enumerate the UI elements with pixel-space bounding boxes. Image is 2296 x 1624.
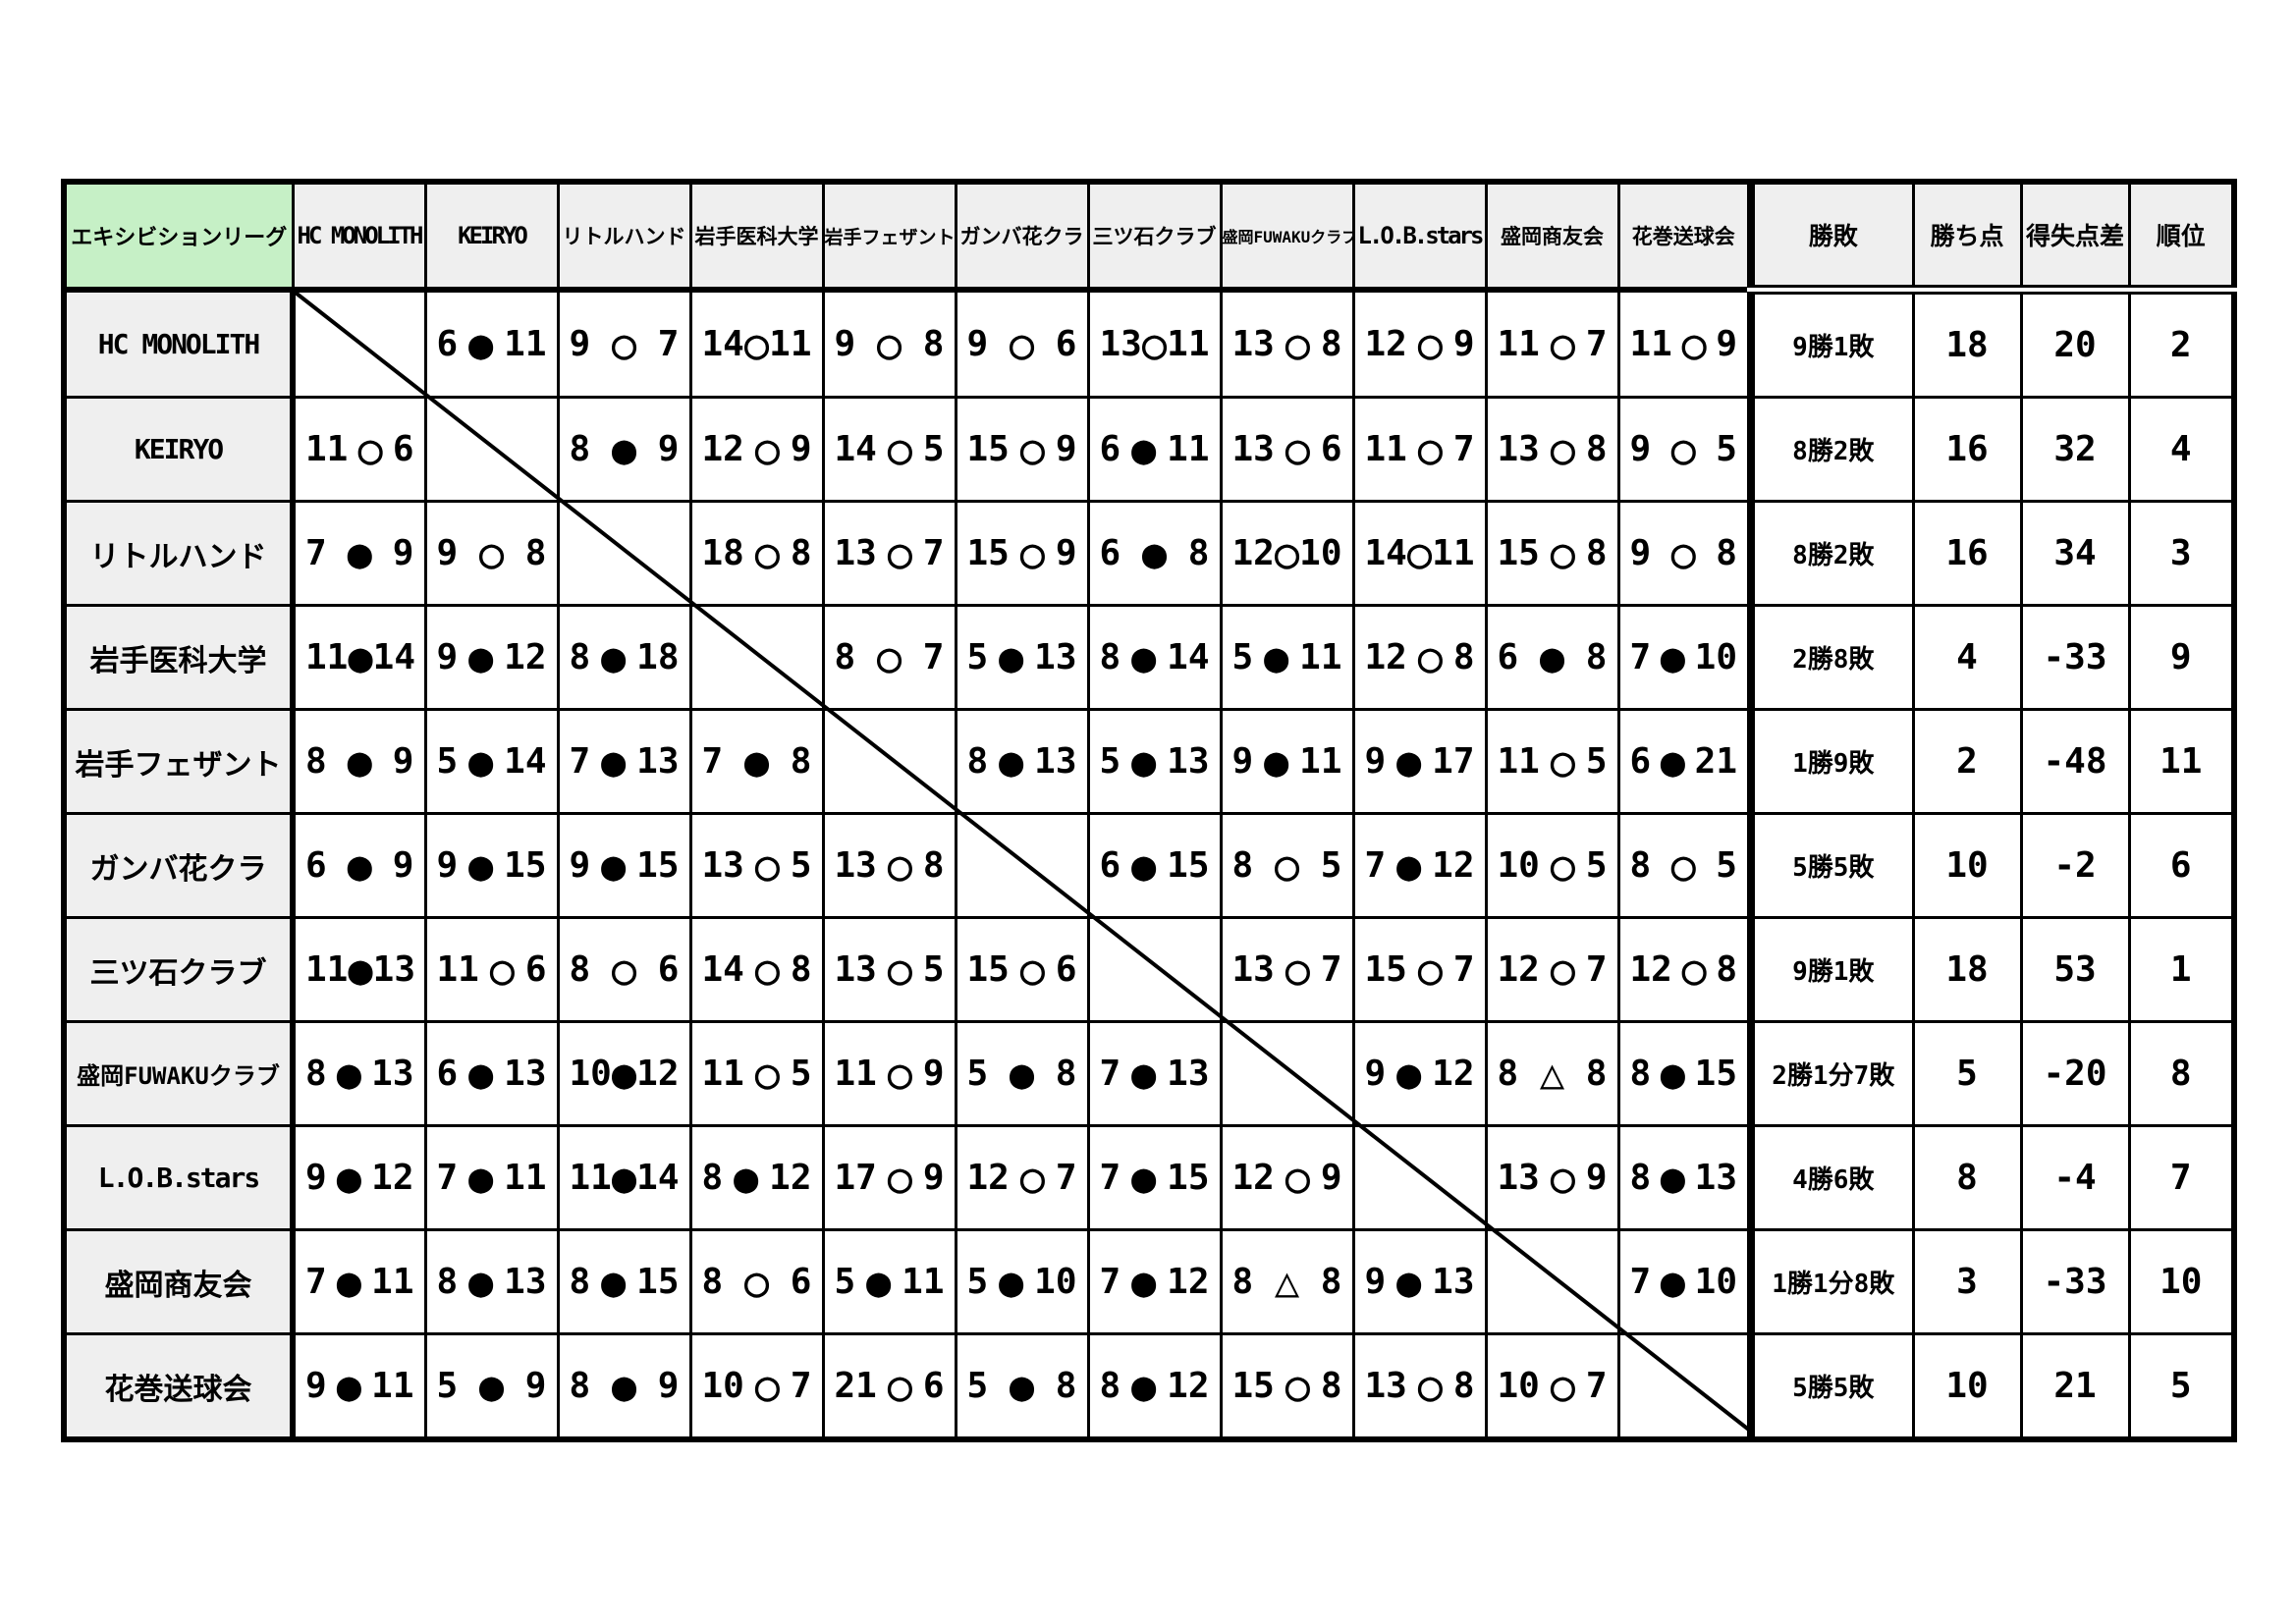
- score-left: 13: [835, 952, 877, 988]
- score-right: 7: [1453, 952, 1475, 988]
- diff-cell: 32: [2021, 398, 2129, 502]
- result-mark-icon: ●: [1010, 1054, 1034, 1095]
- match-result: 8○5: [1620, 815, 1748, 916]
- score-left: 6: [305, 848, 327, 884]
- result-mark-icon: ●: [348, 845, 372, 887]
- result-mark-icon: ●: [1264, 741, 1288, 783]
- score-right: 14: [373, 640, 415, 676]
- diff-cell: 53: [2021, 918, 2129, 1022]
- score-left: 9: [1232, 744, 1254, 780]
- score-right: 15: [1695, 1056, 1737, 1092]
- record-cell: 1勝9敗: [1751, 710, 1913, 814]
- match-cell: 7●9: [293, 502, 425, 606]
- score-left: 13: [1100, 327, 1142, 362]
- points-cell: 4: [1913, 606, 2021, 710]
- result-mark-icon: ●: [337, 1158, 361, 1199]
- match-result: 15○6: [957, 919, 1087, 1020]
- score-left: 5: [437, 1369, 459, 1404]
- score-right: 8: [1586, 1056, 1608, 1092]
- score-left: 6: [437, 1056, 459, 1092]
- match-result: 5●11: [1223, 607, 1352, 708]
- match-cell: 8●9: [558, 1334, 690, 1440]
- score-left: 10: [570, 1056, 612, 1092]
- match-result: 10○7: [692, 1335, 822, 1436]
- score-right: 14: [504, 744, 546, 780]
- score-left: 10: [1498, 848, 1540, 884]
- result-mark-icon: ●: [999, 637, 1023, 678]
- table-row: 盛岡FUWAKUクラブ8●136●1310●1211○511○95●87●139…: [64, 1022, 2234, 1126]
- team-row-label: 盛岡商友会: [64, 1230, 293, 1334]
- score-left: 17: [835, 1161, 877, 1196]
- match-result: 6●8: [1090, 503, 1220, 604]
- score-right: 5: [1716, 848, 1737, 884]
- score-left: 13: [1498, 1161, 1540, 1196]
- score-right: 13: [1034, 640, 1076, 676]
- match-result: 9○8: [825, 293, 955, 396]
- diff-cell: -2: [2021, 814, 2129, 918]
- result-mark-icon: ●: [337, 1054, 361, 1095]
- match-cell: 15○7: [1353, 918, 1486, 1022]
- match-cell: 11○9: [823, 1022, 956, 1126]
- team-header: ガンバ花クラ: [956, 182, 1088, 290]
- league-title-cell: エキシビションリーグ: [64, 182, 293, 290]
- score-right: 11: [1167, 432, 1209, 467]
- score-left: 8: [1232, 848, 1254, 884]
- diff-cell: -33: [2021, 606, 2129, 710]
- match-cell: 8●15: [1618, 1022, 1751, 1126]
- score-right: 13: [1695, 1161, 1737, 1196]
- rank-cell: 3: [2129, 502, 2234, 606]
- score-right: 7: [1321, 952, 1342, 988]
- result-mark-icon: ○: [744, 324, 769, 365]
- match-cell: 13○8: [823, 814, 956, 918]
- match-cell: 8△8: [1486, 1022, 1618, 1126]
- result-mark-icon: ○: [1020, 533, 1045, 574]
- score-left: 7: [702, 744, 724, 780]
- score-left: 11: [1498, 744, 1540, 780]
- score-left: 12: [702, 432, 744, 467]
- match-cell: 6●9: [293, 814, 425, 918]
- score-left: 7: [437, 1161, 459, 1196]
- record-cell: 2勝1分7敗: [1751, 1022, 1913, 1126]
- score-right: 9: [1453, 327, 1475, 362]
- score-left: 15: [967, 432, 1010, 467]
- match-result: 10●12: [560, 1023, 689, 1124]
- match-cell: 12○9: [690, 398, 823, 502]
- table-row: 盛岡商友会7●118●138●158○65●115●107●128△89●137…: [64, 1230, 2234, 1334]
- match-cell: 13○8: [1221, 290, 1353, 398]
- match-result: 9●13: [1355, 1231, 1485, 1332]
- match-result: 13○7: [1223, 919, 1352, 1020]
- team-row-label: リトルハンド: [64, 502, 293, 606]
- score-right: 17: [1432, 744, 1474, 780]
- result-mark-icon: ○: [1551, 741, 1575, 783]
- match-cell: 6●8: [1088, 502, 1221, 606]
- result-mark-icon: ○: [612, 949, 636, 991]
- result-mark-icon: ●: [744, 741, 769, 783]
- score-right: 8: [923, 327, 945, 362]
- result-mark-icon: ○: [479, 533, 504, 574]
- score-right: 11: [1167, 327, 1209, 362]
- match-result: 18○8: [692, 503, 822, 604]
- result-mark-icon: ○: [755, 845, 780, 887]
- match-cell: 7●10: [1618, 1230, 1751, 1334]
- match-result: 12○7: [1488, 919, 1617, 1020]
- score-left: 9: [1365, 1056, 1387, 1092]
- score-right: 6: [393, 432, 414, 467]
- score-left: 13: [1232, 327, 1275, 362]
- match-cell: 14○11: [690, 290, 823, 398]
- match-result: 8○6: [692, 1231, 822, 1332]
- score-left: 8: [570, 640, 591, 676]
- summary-header: 順位: [2129, 182, 2234, 290]
- score-right: 10: [1034, 1265, 1076, 1300]
- points-cell: 10: [1913, 814, 2021, 918]
- match-cell: 9○6: [956, 290, 1088, 398]
- record-cell: 8勝2敗: [1751, 502, 1913, 606]
- match-cell: 12○10: [1221, 502, 1353, 606]
- score-right: 5: [923, 952, 945, 988]
- score-right: 8: [1321, 327, 1342, 362]
- score-left: 8: [1630, 1056, 1652, 1092]
- team-header: L.O.B.stars: [1353, 182, 1486, 290]
- match-cell: 5●9: [425, 1334, 558, 1440]
- result-mark-icon: ○: [1020, 949, 1045, 991]
- score-left: 8: [967, 744, 989, 780]
- match-result: 13○7: [825, 503, 955, 604]
- match-cell: 15○8: [1221, 1334, 1353, 1440]
- match-result: 7●13: [1090, 1023, 1220, 1124]
- score-right: 6: [923, 1369, 945, 1404]
- score-left: 5: [967, 1265, 989, 1300]
- rank-cell: 6: [2129, 814, 2234, 918]
- match-cell: 5●8: [956, 1334, 1088, 1440]
- match-result: 14○8: [692, 919, 822, 1020]
- match-cell: 6●11: [425, 290, 558, 398]
- match-cell: 15○9: [956, 502, 1088, 606]
- score-left: 13: [1365, 1369, 1407, 1404]
- match-cell: 6●11: [1088, 398, 1221, 502]
- match-result: 13○5: [825, 919, 955, 1020]
- match-result: 7●15: [1090, 1127, 1220, 1228]
- match-result: 14○5: [825, 399, 955, 500]
- match-result: 14○11: [1355, 503, 1485, 604]
- match-result: 6●11: [1090, 399, 1220, 500]
- match-cell: 15○8: [1486, 502, 1618, 606]
- match-result: 6●13: [427, 1023, 557, 1124]
- match-result: 11○7: [1355, 399, 1485, 500]
- record-cell: 8勝2敗: [1751, 398, 1913, 502]
- score-right: 8: [1453, 1369, 1475, 1404]
- score-left: 10: [1498, 1369, 1540, 1404]
- match-result: 6●15: [1090, 815, 1220, 916]
- score-right: 15: [1167, 1161, 1209, 1196]
- score-right: 11: [504, 327, 546, 362]
- result-mark-icon: ○: [1551, 429, 1575, 470]
- result-mark-icon: ○: [1551, 845, 1575, 887]
- result-mark-icon: ○: [1551, 533, 1575, 574]
- score-left: 5: [967, 1369, 989, 1404]
- match-result: 7●13: [560, 711, 689, 812]
- match-result: 8●9: [296, 711, 424, 812]
- match-cell: 13○5: [823, 918, 956, 1022]
- match-cell: 12○8: [1618, 918, 1751, 1022]
- match-result: 8●13: [427, 1231, 557, 1332]
- result-mark-icon: ○: [888, 845, 912, 887]
- match-result: 13○8: [1223, 293, 1352, 396]
- score-left: 9: [437, 640, 459, 676]
- match-cell: 13○8: [1353, 1334, 1486, 1440]
- match-cell: [425, 398, 558, 502]
- score-left: 9: [835, 327, 856, 362]
- match-result: 6●11: [427, 293, 557, 396]
- standings-page: エキシビションリーグHC MONOLITHKEIRYOリトルハンド岩手医科大学岩…: [0, 0, 2296, 1624]
- score-right: 9: [923, 1161, 945, 1196]
- score-right: 8: [1321, 1369, 1342, 1404]
- points-cell: 18: [1913, 290, 2021, 398]
- match-cell: [1618, 1334, 1751, 1440]
- score-right: 7: [658, 327, 680, 362]
- score-right: 8: [1586, 432, 1608, 467]
- match-cell: 13○7: [1221, 918, 1353, 1022]
- match-result: 13○9: [1488, 1127, 1617, 1228]
- score-left: 15: [1498, 536, 1540, 571]
- score-left: 8: [305, 744, 327, 780]
- match-result: 11●14: [560, 1127, 689, 1228]
- result-mark-icon: ○: [1551, 324, 1575, 365]
- match-cell: [293, 290, 425, 398]
- result-mark-icon: ●: [612, 1366, 636, 1407]
- match-result: 9●17: [1355, 711, 1485, 812]
- result-mark-icon: ○: [888, 533, 912, 574]
- score-right: 6: [791, 1265, 812, 1300]
- match-result: 8△8: [1223, 1231, 1352, 1332]
- match-cell: 12○7: [1486, 918, 1618, 1022]
- match-cell: 7●8: [690, 710, 823, 814]
- score-right: 21: [1695, 744, 1737, 780]
- match-result: 8●14: [1090, 607, 1220, 708]
- match-result: 13○11: [1090, 293, 1220, 396]
- score-right: 8: [1586, 640, 1608, 676]
- record-cell: 5勝5敗: [1751, 814, 1913, 918]
- match-cell: 9●15: [558, 814, 690, 918]
- result-mark-icon: ●: [468, 741, 493, 783]
- score-left: 11: [570, 1161, 612, 1196]
- match-cell: 11○6: [293, 398, 425, 502]
- match-result: 12○9: [1223, 1127, 1352, 1228]
- match-result: 8○5: [1223, 815, 1352, 916]
- score-left: 11: [1630, 327, 1672, 362]
- score-right: 7: [1586, 327, 1608, 362]
- score-right: 18: [636, 640, 679, 676]
- match-result: 9●15: [560, 815, 689, 916]
- score-right: 8: [1453, 640, 1475, 676]
- score-right: 6: [1056, 327, 1077, 362]
- match-cell: 11○5: [690, 1022, 823, 1126]
- match-cell: 12○9: [1353, 290, 1486, 398]
- match-cell: 8●12: [1088, 1334, 1221, 1440]
- score-right: 15: [1167, 848, 1209, 884]
- match-cell: 8●13: [293, 1022, 425, 1126]
- score-right: 15: [504, 848, 546, 884]
- match-result: 7●11: [296, 1231, 424, 1332]
- result-mark-icon: ●: [1661, 637, 1685, 678]
- result-mark-icon: ●: [1131, 429, 1156, 470]
- match-cell: 5●10: [956, 1230, 1088, 1334]
- result-mark-icon: ●: [337, 1366, 361, 1407]
- team-header: KEIRYO: [425, 182, 558, 290]
- score-left: 7: [305, 536, 327, 571]
- match-cell: 8●12: [690, 1126, 823, 1230]
- score-left: 8: [702, 1265, 724, 1300]
- result-mark-icon: ●: [337, 1262, 361, 1303]
- score-right: 7: [1586, 952, 1608, 988]
- result-mark-icon: ●: [348, 949, 372, 991]
- result-mark-icon: ○: [357, 429, 382, 470]
- match-result: 9●11: [296, 1335, 424, 1436]
- match-cell: 13○6: [1221, 398, 1353, 502]
- score-right: 11: [371, 1265, 413, 1300]
- score-left: 8: [570, 432, 591, 467]
- match-result: 15○9: [957, 399, 1087, 500]
- match-result: 8○7: [825, 607, 955, 708]
- score-right: 11: [1299, 640, 1341, 676]
- score-right: 6: [1056, 952, 1077, 988]
- result-mark-icon: ●: [866, 1262, 891, 1303]
- match-result: 5●8: [957, 1023, 1087, 1124]
- score-left: 7: [1630, 1265, 1652, 1300]
- team-row-label: 盛岡FUWAKUクラブ: [64, 1022, 293, 1126]
- match-cell: 9●13: [1353, 1230, 1486, 1334]
- score-right: 11: [504, 1161, 546, 1196]
- match-result: 8●15: [1620, 1023, 1748, 1124]
- result-mark-icon: ●: [1396, 1262, 1421, 1303]
- match-result: 17○9: [825, 1127, 955, 1228]
- result-mark-icon: ○: [888, 1366, 912, 1407]
- result-mark-icon: ○: [1671, 429, 1696, 470]
- match-cell: 9●12: [1353, 1022, 1486, 1126]
- record-cell: 2勝8敗: [1751, 606, 1913, 710]
- score-left: 12: [1365, 327, 1407, 362]
- match-result: 15○7: [1355, 919, 1485, 1020]
- points-cell: 3: [1913, 1230, 2021, 1334]
- match-cell: [1221, 1022, 1353, 1126]
- result-mark-icon: ○: [1418, 324, 1443, 365]
- match-cell: 8○5: [1618, 814, 1751, 918]
- result-mark-icon: ○: [744, 1262, 769, 1303]
- match-result: 10○7: [1488, 1335, 1617, 1436]
- match-cell: 10●12: [558, 1022, 690, 1126]
- match-result: 11○5: [692, 1023, 822, 1124]
- score-left: 8: [305, 1056, 327, 1092]
- score-right: 9: [1586, 1161, 1608, 1196]
- match-cell: 15○9: [956, 398, 1088, 502]
- points-cell: 16: [1913, 502, 2021, 606]
- score-right: 15: [636, 848, 679, 884]
- match-cell: [558, 502, 690, 606]
- score-right: 5: [1716, 432, 1737, 467]
- match-cell: 8●14: [1088, 606, 1221, 710]
- score-right: 8: [923, 848, 945, 884]
- score-right: 11: [902, 1265, 944, 1300]
- table-row: 三ツ石クラブ11●1311○68○614○813○515○613○715○712…: [64, 918, 2234, 1022]
- score-right: 8: [791, 744, 812, 780]
- score-right: 9: [393, 848, 414, 884]
- table-row: HC MONOLITH6●119○714○119○89○613○1113○812…: [64, 290, 2234, 398]
- match-result: 13○6: [1223, 399, 1352, 500]
- match-result: 7●10: [1620, 1231, 1748, 1332]
- rank-cell: 11: [2129, 710, 2234, 814]
- match-result: 21○6: [825, 1335, 955, 1436]
- score-left: 15: [967, 952, 1010, 988]
- score-left: 8: [702, 1161, 724, 1196]
- score-right: 11: [371, 1369, 413, 1404]
- score-left: 9: [967, 327, 989, 362]
- match-cell: 11○5: [1486, 710, 1618, 814]
- score-right: 10: [1695, 1265, 1737, 1300]
- score-left: 6: [437, 327, 459, 362]
- match-cell: [1088, 918, 1221, 1022]
- points-cell: 2: [1913, 710, 2021, 814]
- match-cell: 8○6: [690, 1230, 823, 1334]
- match-cell: 13○9: [1486, 1126, 1618, 1230]
- score-right: 11: [1299, 744, 1341, 780]
- diff-cell: -20: [2021, 1022, 2129, 1126]
- score-left: 8: [570, 1265, 591, 1300]
- rank-cell: 1: [2129, 918, 2234, 1022]
- match-result: 8●18: [560, 607, 689, 708]
- result-mark-icon: ●: [468, 637, 493, 678]
- score-right: 9: [658, 432, 680, 467]
- match-result: 11○7: [1488, 293, 1617, 396]
- match-result: 11○6: [427, 919, 557, 1020]
- result-mark-icon: ●: [1661, 1054, 1685, 1095]
- match-cell: 11●14: [558, 1126, 690, 1230]
- diff-cell: 20: [2021, 290, 2129, 398]
- match-cell: 10○7: [1486, 1334, 1618, 1440]
- match-cell: 8●13: [425, 1230, 558, 1334]
- result-mark-icon: ○: [1551, 1158, 1575, 1199]
- match-result: 7●8: [692, 711, 822, 812]
- result-mark-icon: ○: [1010, 324, 1034, 365]
- match-cell: 8●13: [1618, 1126, 1751, 1230]
- score-left: 18: [702, 536, 744, 571]
- score-left: 5: [835, 1265, 856, 1300]
- result-mark-icon: ○: [1285, 1158, 1310, 1199]
- result-mark-icon: ○: [1681, 324, 1706, 365]
- score-left: 13: [702, 848, 744, 884]
- score-right: 12: [371, 1161, 413, 1196]
- result-mark-icon: ●: [468, 845, 493, 887]
- match-result: 8●9: [560, 399, 689, 500]
- match-cell: 10○5: [1486, 814, 1618, 918]
- score-right: 12: [636, 1056, 679, 1092]
- result-mark-icon: ○: [612, 324, 636, 365]
- match-cell: 11●13: [293, 918, 425, 1022]
- match-cell: [823, 710, 956, 814]
- score-right: 7: [1586, 1369, 1608, 1404]
- result-mark-icon: ●: [999, 1262, 1023, 1303]
- score-right: 8: [791, 536, 812, 571]
- score-right: 14: [636, 1161, 679, 1196]
- rank-cell: 5: [2129, 1334, 2234, 1440]
- score-right: 8: [791, 952, 812, 988]
- result-mark-icon: ○: [1275, 533, 1299, 574]
- table-header: エキシビションリーグHC MONOLITHKEIRYOリトルハンド岩手医科大学岩…: [64, 182, 2234, 290]
- score-left: 11: [1365, 432, 1407, 467]
- result-mark-icon: ●: [1661, 1158, 1685, 1199]
- score-left: 12: [1498, 952, 1540, 988]
